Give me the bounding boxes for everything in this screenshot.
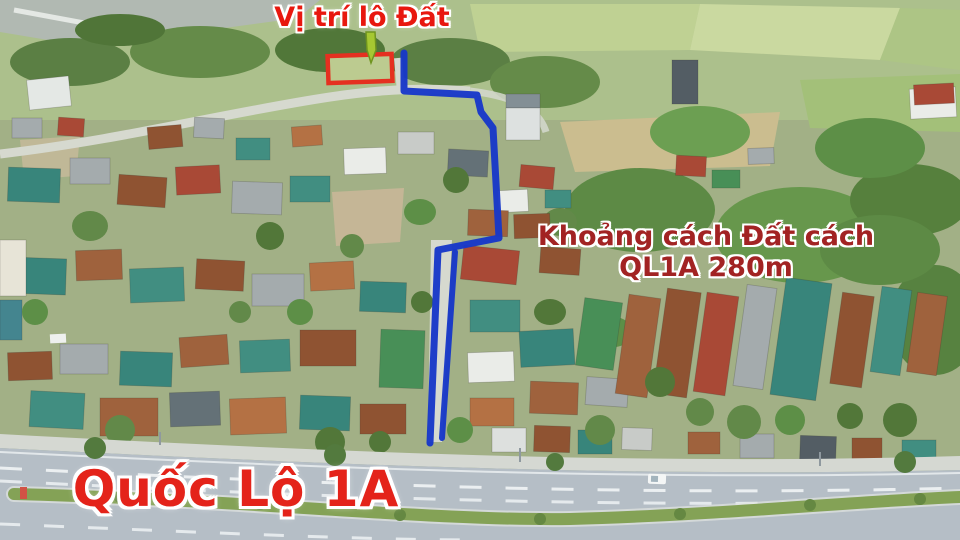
route-line xyxy=(404,53,499,443)
highway-label: Quốc Lộ 1A xyxy=(73,461,400,519)
distance-label-line1: Khoảng cách Đất cách xyxy=(538,221,874,252)
distance-label: Khoảng cách Đất cách QL1A 280m xyxy=(538,221,874,283)
plot-rectangle xyxy=(328,54,393,83)
plot-arrow-icon xyxy=(366,32,376,63)
plot-location-label: Vị trí lô Đất xyxy=(274,2,449,33)
route-line-right-edge xyxy=(442,252,455,438)
distance-label-line2: QL1A 280m xyxy=(538,252,874,283)
aerial-photo: Vị trí lô Đất Khoảng cách Đất cách QL1A … xyxy=(0,0,960,540)
